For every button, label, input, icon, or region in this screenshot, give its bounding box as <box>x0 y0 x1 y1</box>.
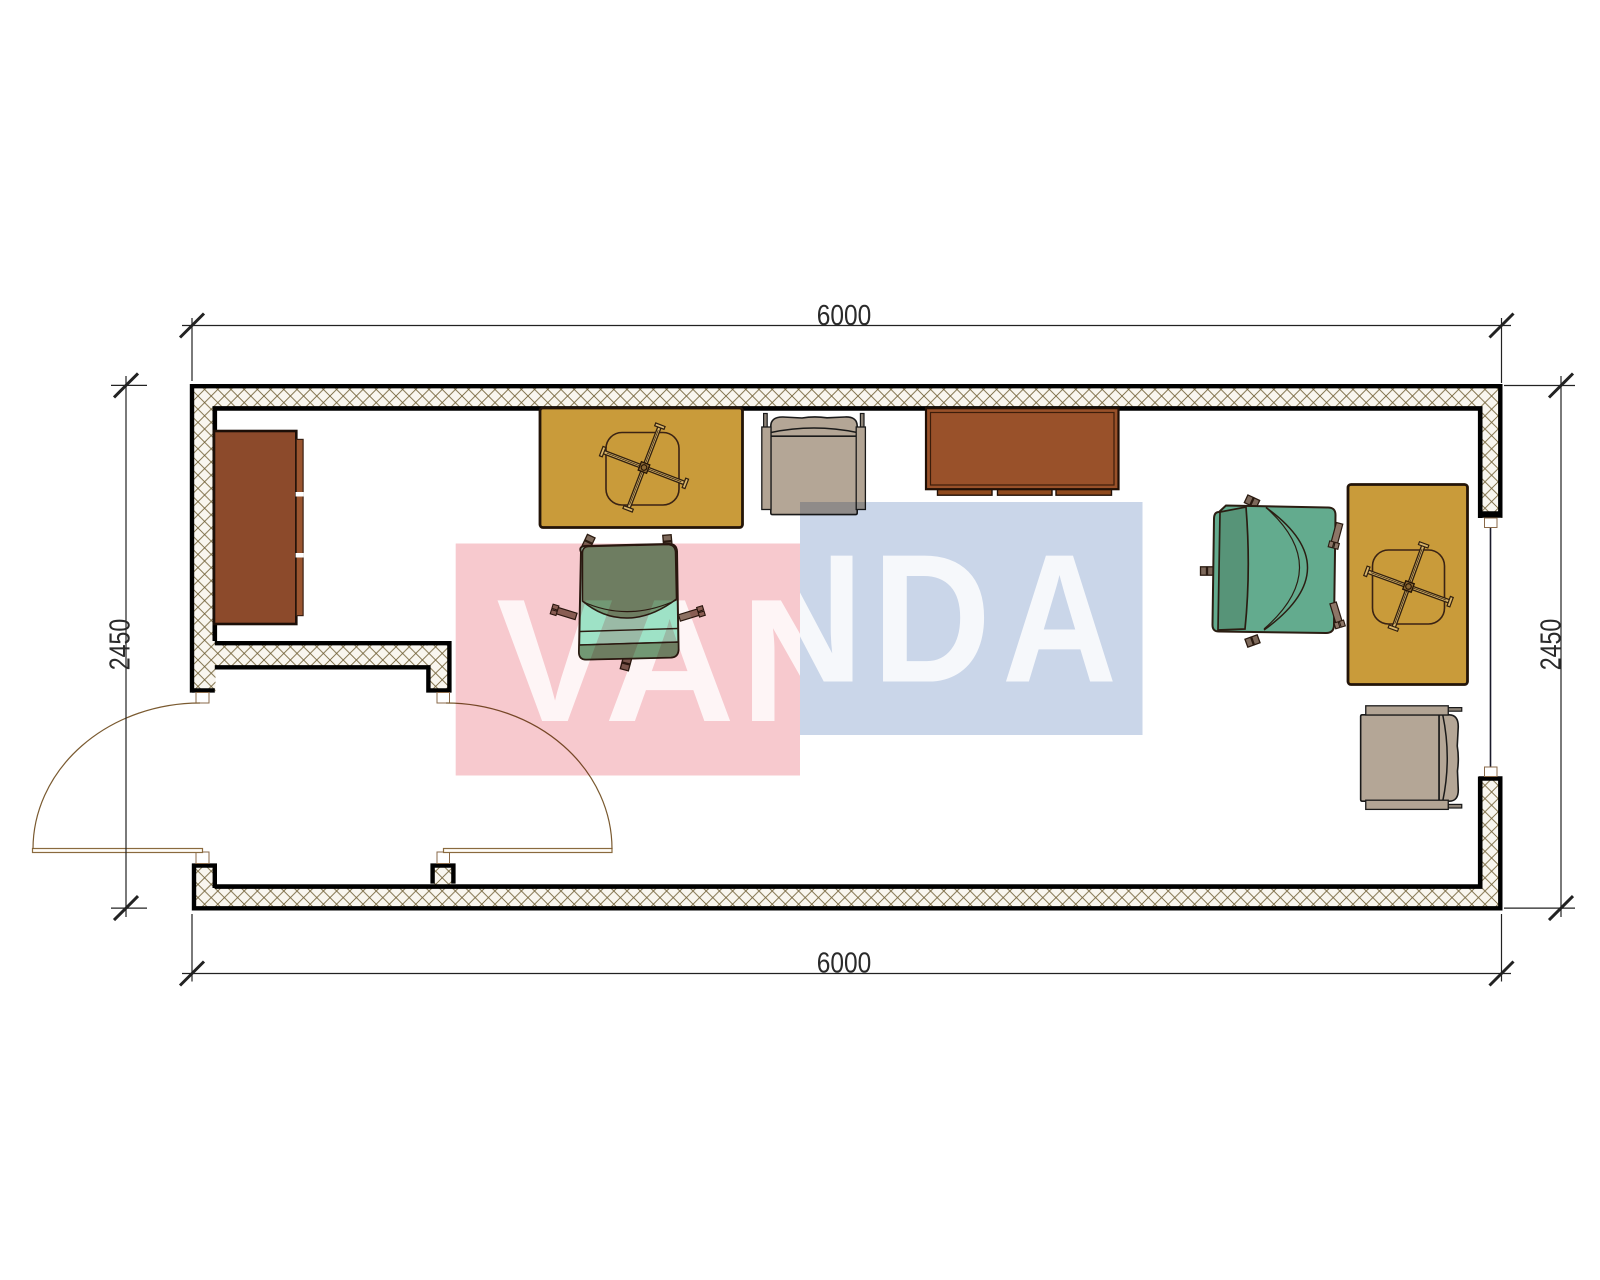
svg-text:2450: 2450 <box>104 619 136 671</box>
svg-text:6000: 6000 <box>817 300 872 332</box>
svg-text:A: A <box>1002 516 1117 721</box>
svg-text:D: D <box>872 516 991 721</box>
svg-text:A: A <box>604 563 735 759</box>
svg-text:V: V <box>496 563 613 759</box>
svg-text:2450: 2450 <box>1535 619 1567 671</box>
svg-text:6000: 6000 <box>817 948 872 980</box>
